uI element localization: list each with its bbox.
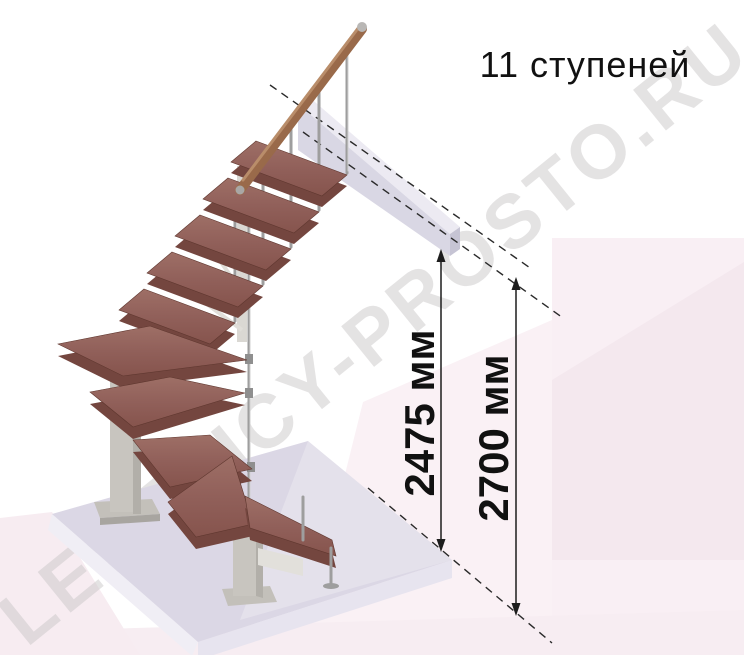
post-sleeve <box>245 388 253 398</box>
post-sleeve <box>245 354 253 364</box>
handrail-end-cap <box>236 186 245 195</box>
arrow-up-2700 <box>512 277 521 290</box>
dimension-label-2475: 2475 мм <box>396 329 443 496</box>
bottom-step-foot <box>323 583 339 589</box>
handrail-top-cap <box>357 22 367 32</box>
staircase-diagram: LESTNICY-PROSTO.RU <box>0 0 744 655</box>
diagram-stage: LESTNICY-PROSTO.RU <box>0 0 744 655</box>
diagram-title: 11 ступеней <box>455 44 715 86</box>
dimension-label-2700: 2700 мм <box>470 354 517 521</box>
